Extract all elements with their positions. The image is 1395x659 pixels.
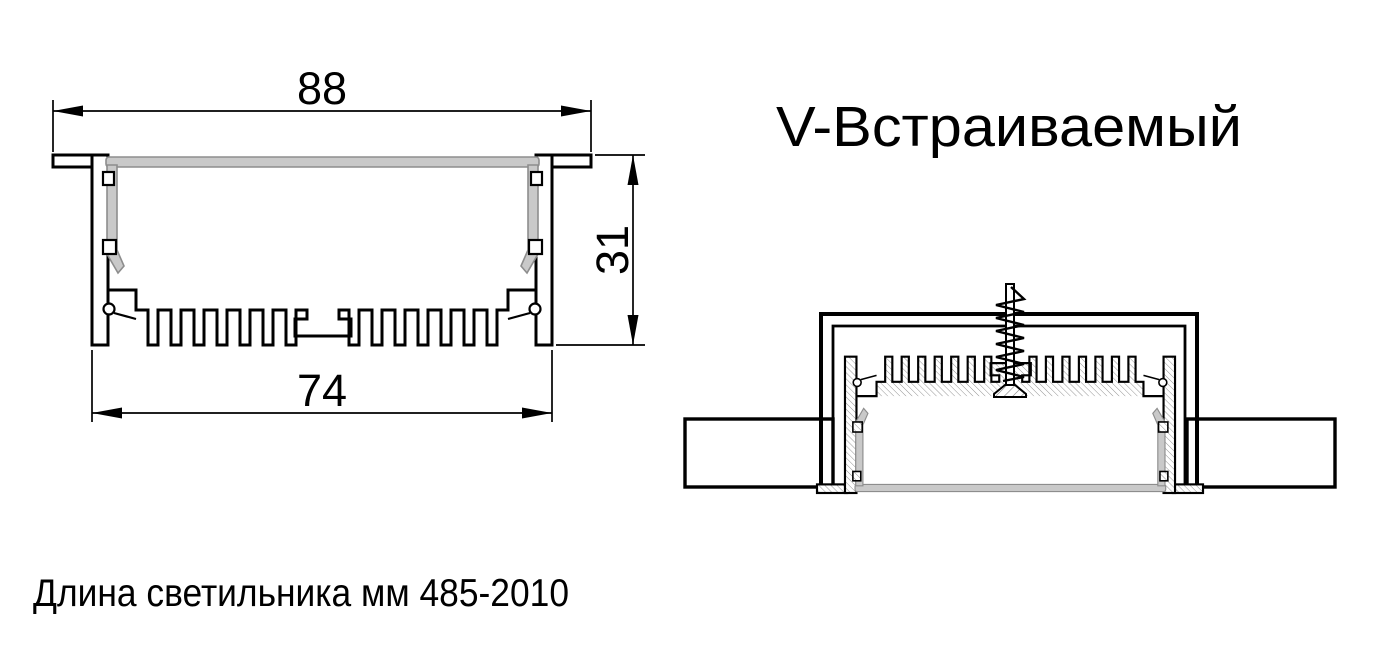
dim-arrow-left (92, 408, 122, 419)
dimension-body-width: 74 (92, 350, 552, 422)
profile-cross-section (53, 155, 591, 345)
led-profile-drawing: 88 74 31 (0, 0, 1395, 659)
dim-arrow-right (522, 408, 552, 419)
ceiling-panel-right (1187, 419, 1335, 487)
dim-arrow-left (53, 106, 83, 117)
dim-label-body-width: 74 (297, 365, 347, 416)
mounted-view (685, 284, 1335, 493)
dim-arrow-bottom (628, 315, 639, 345)
dim-label-overall-width: 88 (297, 63, 347, 114)
technical-drawing-page: 88 74 31 (0, 0, 1395, 659)
section-view: 88 74 31 (53, 63, 645, 422)
dim-arrow-top (628, 155, 639, 185)
page-title: V-Встраиваемый (776, 95, 1242, 159)
dim-label-height: 31 (587, 225, 638, 275)
dimension-height: 31 (556, 155, 645, 345)
ceiling-panel-left (685, 419, 833, 487)
dimension-overall-width: 88 (53, 63, 591, 152)
dim-arrow-right (561, 106, 591, 117)
length-note: Длина светильника мм 485-2010 (33, 572, 569, 615)
